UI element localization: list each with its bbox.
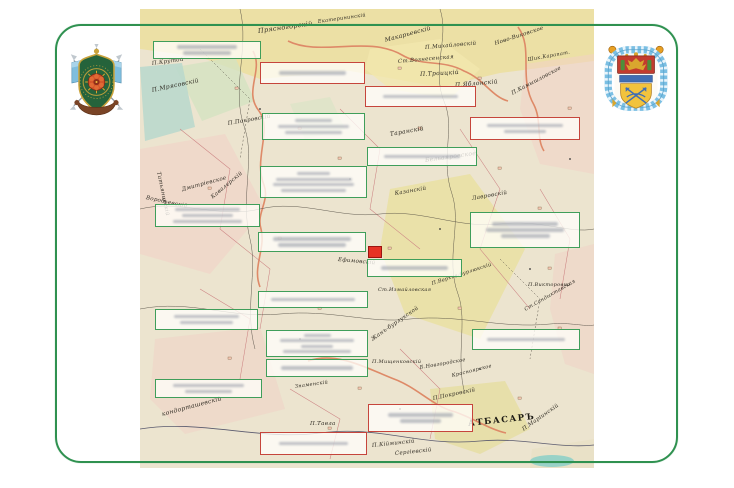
blurred-text-line bbox=[285, 131, 341, 135]
blurred-text-line bbox=[283, 350, 351, 353]
blurred-text-line bbox=[297, 172, 330, 175]
blurred-text-line bbox=[487, 338, 566, 342]
person-plaque-g9 bbox=[258, 291, 368, 308]
person-plaque-g4 bbox=[260, 166, 367, 198]
blurred-text-line bbox=[182, 214, 233, 218]
blurred-text-line bbox=[280, 339, 354, 342]
person-plaque-r4 bbox=[260, 432, 367, 455]
person-plaque-g8 bbox=[367, 259, 462, 277]
blurred-text-line bbox=[276, 178, 352, 181]
person-plaque-r5 bbox=[368, 404, 473, 432]
blurred-text-line bbox=[400, 419, 442, 423]
page: АТБАСАРЪП.МарiинскійП.МихайловскійСт.Воз… bbox=[0, 0, 734, 488]
person-plaque-g3 bbox=[367, 147, 477, 166]
blurred-text-line bbox=[279, 442, 347, 446]
blurred-text-line bbox=[185, 390, 233, 394]
person-plaque-g7 bbox=[258, 232, 366, 252]
blurred-text-line bbox=[388, 413, 453, 417]
blurred-text-line bbox=[271, 298, 354, 302]
person-plaque-g1 bbox=[153, 41, 261, 59]
blurred-text-line bbox=[501, 234, 550, 238]
blurred-text-line bbox=[301, 345, 333, 348]
blurred-text-line bbox=[173, 220, 243, 224]
blurred-text-line bbox=[383, 95, 457, 99]
blurred-text-line bbox=[281, 366, 353, 370]
blurred-text-line bbox=[273, 183, 354, 186]
person-plaque-g14 bbox=[155, 379, 262, 398]
person-plaque-g6 bbox=[470, 212, 580, 248]
blurred-text-line bbox=[384, 155, 460, 159]
person-plaque-g13 bbox=[266, 359, 368, 377]
blurred-text-line bbox=[492, 222, 559, 226]
blurred-text-line bbox=[180, 321, 233, 325]
blurred-text-line bbox=[173, 384, 244, 388]
person-plaque-g11 bbox=[472, 329, 580, 350]
blurred-text-line bbox=[487, 124, 563, 128]
person-plaque-r2 bbox=[365, 86, 476, 107]
blurred-text-line bbox=[304, 334, 331, 337]
blurred-text-line bbox=[177, 45, 237, 49]
blurred-text-line bbox=[175, 208, 240, 212]
blurred-text-line bbox=[486, 228, 564, 232]
blurred-text-line bbox=[381, 266, 447, 270]
blurred-text-line bbox=[281, 189, 346, 192]
blurred-text-line bbox=[273, 237, 352, 241]
person-plaque-g10 bbox=[155, 309, 258, 330]
blurred-text-line bbox=[183, 51, 231, 55]
blurred-text-line bbox=[174, 315, 240, 319]
person-plaque-g12 bbox=[266, 330, 368, 357]
person-plaque-r1 bbox=[260, 62, 365, 84]
blurred-text-line bbox=[295, 119, 331, 123]
blurred-text-line bbox=[278, 243, 345, 247]
genealogy-plaques-layer bbox=[0, 0, 734, 488]
blurred-text-line bbox=[279, 71, 346, 75]
blurred-text-line bbox=[278, 125, 349, 129]
person-plaque-g5 bbox=[155, 204, 260, 227]
person-plaque-g2 bbox=[262, 113, 365, 140]
person-plaque-r3 bbox=[470, 117, 580, 140]
blurred-text-line bbox=[504, 130, 545, 134]
